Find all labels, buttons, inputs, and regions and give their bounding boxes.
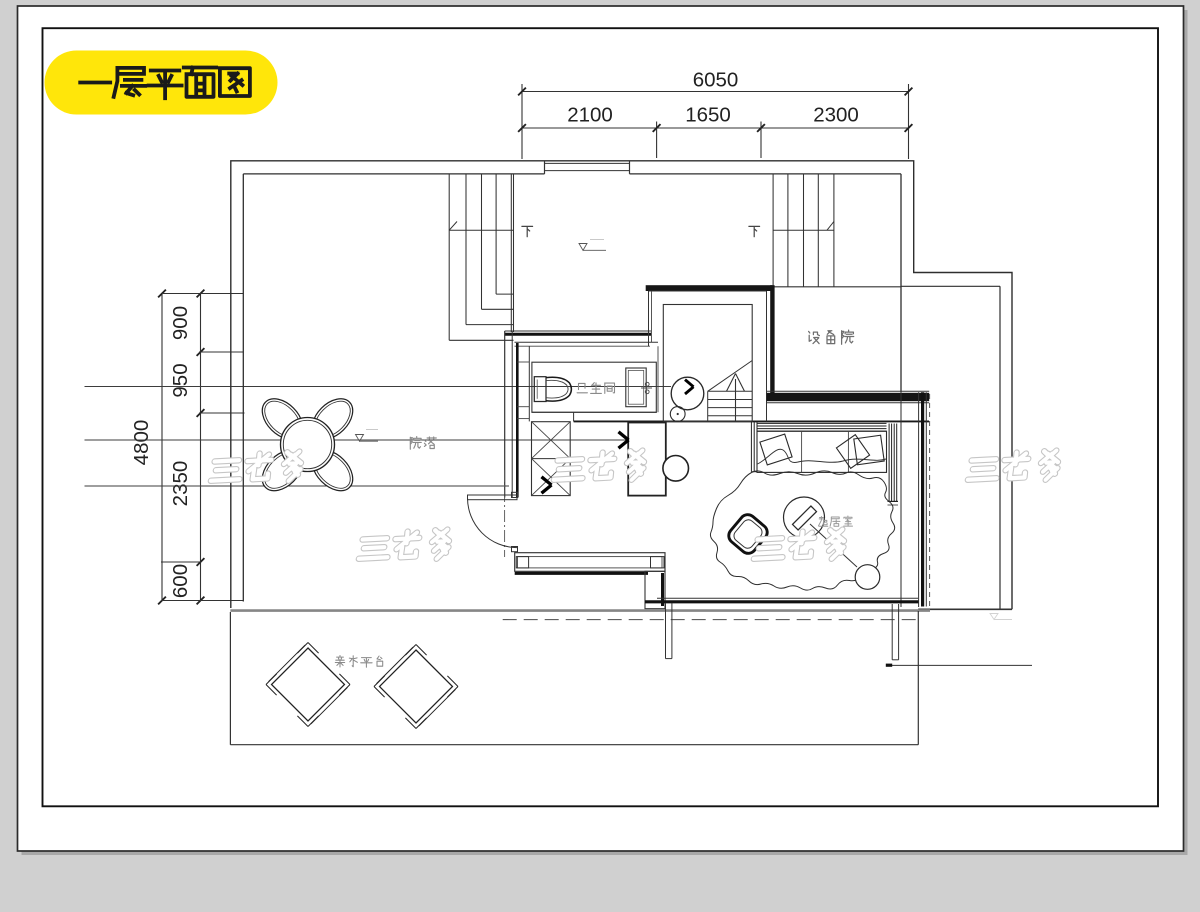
svg-text:1650: 1650 [685,104,731,127]
svg-text:900: 900 [169,306,192,340]
svg-text:6050: 6050 [693,69,739,92]
svg-text:950: 950 [169,363,192,397]
svg-text:2300: 2300 [813,104,859,127]
svg-text:2100: 2100 [567,104,613,127]
svg-text:600: 600 [169,564,192,598]
svg-text:4800: 4800 [130,420,153,466]
svg-text:2350: 2350 [169,461,192,507]
